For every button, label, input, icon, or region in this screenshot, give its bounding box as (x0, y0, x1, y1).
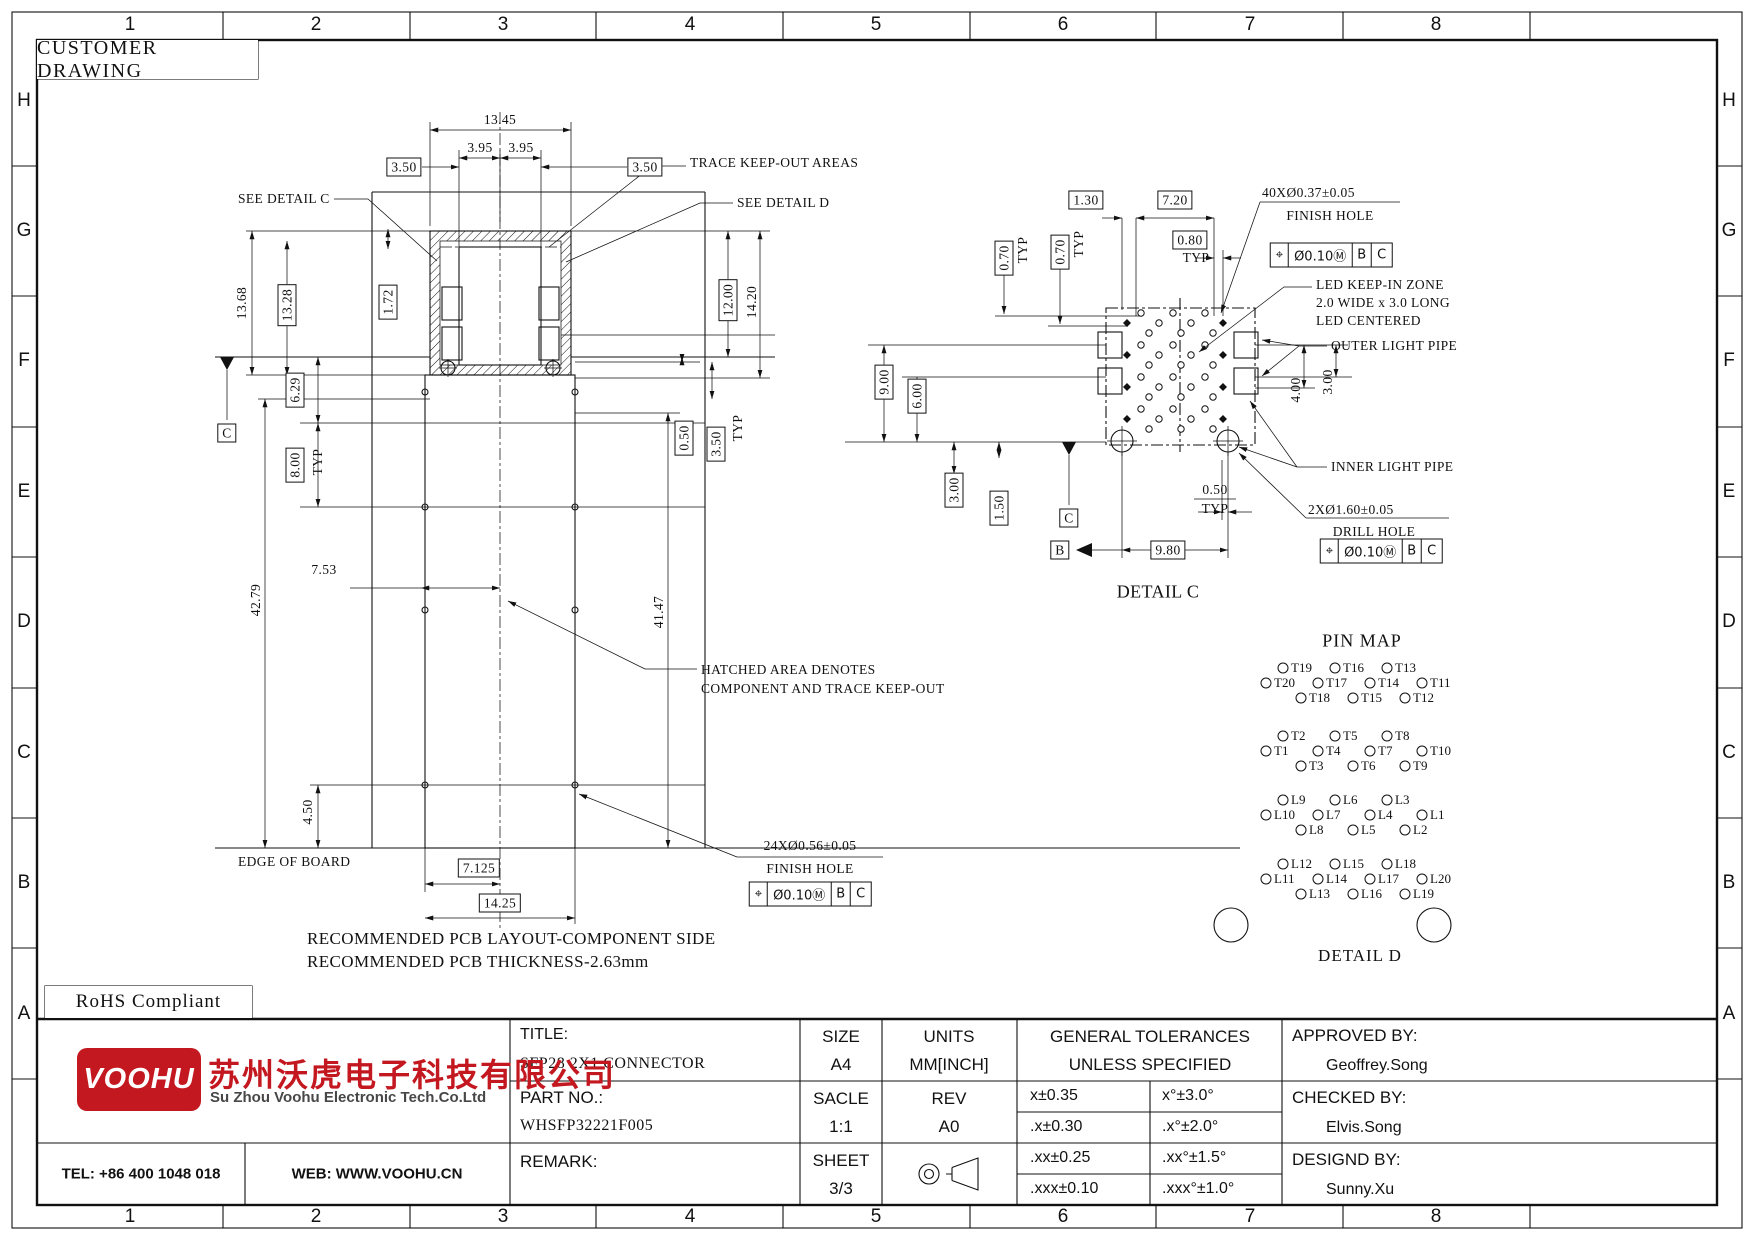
pin-label: L13 (1309, 886, 1330, 902)
title-block-grid (37, 1019, 1717, 1205)
drawing-sheet: CUSTOMER DRAWING RoHS Compliant PIN MAP … (0, 0, 1754, 1240)
dim-label: 12.00 (719, 279, 738, 321)
pin-hole (1313, 810, 1324, 821)
pin-label: T10 (1430, 743, 1451, 759)
dim-label: 8.00 (286, 447, 305, 482)
gdt-cell: C (1422, 540, 1441, 563)
pin-hole (1365, 678, 1376, 689)
zone-col-bottom: 6 (1058, 1206, 1069, 1228)
dim-label: TYP (1015, 237, 1031, 264)
dim-label: 2.0 WIDE x 3.0 LONG (1316, 295, 1450, 311)
dim-label: TYP (1202, 501, 1229, 517)
dim-label: 9.80 (1150, 541, 1185, 560)
pin-map-title: PIN MAP (1322, 631, 1402, 652)
dim-label: 0.70 (995, 240, 1014, 275)
detail-d-label: DETAIL D (1318, 946, 1402, 966)
dim-label: 7.20 (1157, 191, 1192, 210)
dim-label: 0.50 (675, 420, 694, 455)
units-label: UNITS (924, 1027, 975, 1047)
checked-value: Elvis.Song (1326, 1119, 1402, 1137)
pin-label: T20 (1274, 675, 1295, 691)
zone-col-bottom: 3 (498, 1206, 509, 1228)
dim-label: 13.28 (278, 284, 297, 326)
pin-label: L5 (1361, 822, 1375, 838)
pin-label: L6 (1343, 792, 1357, 808)
dim-label: 3.50 (707, 426, 726, 461)
tol-dxxdeg: .xx°±1.5° (1162, 1149, 1226, 1167)
designed-value: Sunny.Xu (1326, 1181, 1394, 1199)
pin-hole (1365, 874, 1376, 885)
tol-dx: .x±0.30 (1030, 1118, 1082, 1136)
pin-label: T14 (1378, 675, 1399, 691)
dim-label: TYP (1183, 250, 1210, 266)
zone-col-bottom: 4 (685, 1206, 696, 1228)
zone-row-left: G (17, 220, 32, 242)
pin-hole (1313, 746, 1324, 757)
datum-b: B (1050, 541, 1069, 560)
zone-row-left: E (18, 481, 31, 503)
gdt-frame: ⌖Ø0.10ⓂBC (1270, 243, 1393, 268)
pin-label: L12 (1291, 856, 1312, 872)
pin-label: T13 (1395, 660, 1416, 676)
zone-row-left: A (18, 1003, 31, 1025)
note-inner-light-pipe: INNER LIGHT PIPE (1331, 459, 1453, 475)
dim-label: 3.95 (467, 140, 492, 156)
zone-row-right: C (1722, 742, 1736, 764)
zone-row-left: B (18, 872, 31, 894)
zone-col-bottom: 2 (311, 1206, 322, 1228)
pin-hole (1278, 731, 1289, 742)
gdt-cell: Ø0.10Ⓜ (768, 883, 831, 906)
dim-label: 3.50 (386, 158, 421, 177)
zone-row-right: F (1723, 350, 1735, 372)
dim-label: 3.50 (627, 158, 662, 177)
note-see-detail-d: SEE DETAIL D (737, 195, 829, 211)
dim-label: 42.79 (248, 584, 264, 616)
pin-hole (1400, 825, 1411, 836)
pin-label: L3 (1395, 792, 1409, 808)
gdt-cell: C (1372, 244, 1391, 267)
zone-row-right: H (1722, 90, 1736, 112)
pin-hole (1365, 746, 1376, 757)
note-pcb-thickness: RECOMMENDED PCB THICKNESS-2.63mm (307, 952, 649, 972)
pin-hole (1382, 795, 1393, 806)
dim-label: 14.20 (744, 286, 760, 318)
tol-dxx: .xx±0.25 (1030, 1149, 1090, 1167)
pin-hole (1261, 874, 1272, 885)
pin-label: L17 (1378, 871, 1399, 887)
detail-c-label: DETAIL C (1117, 582, 1200, 603)
approved-value: Geoffrey.Song (1326, 1057, 1428, 1075)
pin-hole (1400, 761, 1411, 772)
pin-label: T2 (1291, 728, 1305, 744)
dim-label: TYP (310, 449, 326, 476)
note-trace-keepout: TRACE KEEP-OUT AREAS (690, 155, 858, 171)
zone-col-top: 5 (871, 14, 882, 36)
note-pcb-layout: RECOMMENDED PCB LAYOUT-COMPONENT SIDE (307, 929, 716, 949)
pin-label: L1 (1430, 807, 1444, 823)
detail-d-circles (1214, 908, 1451, 942)
pin-label: T9 (1413, 758, 1427, 774)
pin-hole (1417, 678, 1428, 689)
tol-xdeg: x°±3.0° (1162, 1087, 1214, 1105)
approved-label: APPROVED BY: (1292, 1026, 1418, 1046)
pin-label: T19 (1291, 660, 1312, 676)
rev-value: A0 (939, 1117, 960, 1137)
zone-col-bottom: 5 (871, 1206, 882, 1228)
datum-c-detail: C (1059, 509, 1078, 528)
designed-label: DESIGND BY: (1292, 1150, 1401, 1170)
zone-row-right: G (1722, 220, 1737, 242)
units-value: MM[INCH] (909, 1055, 988, 1075)
pin-hole (1261, 810, 1272, 821)
note-led-keepin: LED KEEP-IN ZONE (1316, 277, 1444, 293)
projection-symbol (919, 1158, 978, 1190)
pin-label: T18 (1309, 690, 1330, 706)
dim-label: 7.125 (458, 859, 500, 878)
voohu-logo: VOOHU (77, 1048, 201, 1111)
pin-label: L8 (1309, 822, 1323, 838)
pin-hole (1365, 810, 1376, 821)
pin-hole (1261, 746, 1272, 757)
tol-x: x±0.35 (1030, 1087, 1078, 1105)
pin-hole (1313, 874, 1324, 885)
dim-label: 4.50 (300, 799, 316, 824)
gdt-cell: Ø0.10Ⓜ (1289, 244, 1352, 267)
datum-c: C (217, 424, 236, 443)
pin-label: L9 (1291, 792, 1305, 808)
pin-label: L11 (1274, 871, 1294, 887)
pin-hole (1296, 889, 1307, 900)
gdt-cell: Ø0.10Ⓜ (1339, 540, 1402, 563)
zone-row-left: H (17, 90, 31, 112)
tol-dxxxdeg: .xxx°±1.0° (1162, 1180, 1234, 1198)
size-value: A4 (831, 1055, 852, 1075)
pin-hole (1382, 663, 1393, 674)
zone-row-right: B (1723, 872, 1736, 894)
zone-col-top: 8 (1431, 14, 1442, 36)
pin-label: L16 (1361, 886, 1382, 902)
dim-label: 3.95 (508, 140, 533, 156)
scale-value: 1:1 (829, 1117, 853, 1137)
customer-drawing-box: CUSTOMER DRAWING (37, 40, 258, 79)
sheet-label: SHEET (813, 1151, 870, 1171)
pin-hole (1330, 859, 1341, 870)
gdt-cell: ⌖ (750, 883, 768, 906)
pin-label: T6 (1361, 758, 1375, 774)
pin-label: T1 (1274, 743, 1288, 759)
pin-hole (1313, 678, 1324, 689)
customer-drawing-label: CUSTOMER DRAWING (37, 37, 258, 83)
part-value: WHSFP32221F005 (520, 1117, 653, 1135)
pin-hole (1348, 825, 1359, 836)
zone-row-right: A (1723, 1003, 1736, 1025)
zone-row-left: C (17, 742, 31, 764)
zone-col-bottom: 7 (1245, 1206, 1256, 1228)
gdt-frame: ⌖Ø0.10ⓂBC (749, 882, 872, 907)
pin-label: T11 (1430, 675, 1450, 691)
pin-hole (1296, 825, 1307, 836)
callout-drill-hole-2x: 2XØ1.60±0.05 (1308, 502, 1394, 518)
pin-hole (1278, 859, 1289, 870)
pin-label: L19 (1413, 886, 1434, 902)
pin-hole (1400, 889, 1411, 900)
dim-label: TYP (730, 415, 746, 442)
tolerances-header-2: UNLESS SPECIFIED (1069, 1055, 1232, 1075)
scale-label: SACLE (813, 1089, 869, 1109)
dim-label: 7.53 (311, 562, 336, 578)
pin-hole (1348, 761, 1359, 772)
pin-label: T5 (1343, 728, 1357, 744)
zone-col-bottom: 8 (1431, 1206, 1442, 1228)
main-view (215, 0, 1240, 930)
pin-hole (1278, 795, 1289, 806)
callout-finish-hole-40x: 40XØ0.37±0.05 (1262, 185, 1355, 201)
callout-finish-hole-24x: 24XØ0.56±0.05 (764, 838, 857, 854)
size-label: SIZE (822, 1027, 860, 1047)
pin-hole (1330, 663, 1341, 674)
zone-row-right: D (1722, 611, 1736, 633)
pin-hole (1348, 693, 1359, 704)
title-label: TITLE: (520, 1026, 568, 1044)
zone-col-top: 6 (1058, 14, 1069, 36)
dim-label: 14.25 (479, 894, 521, 913)
checked-label: CHECKED BY: (1292, 1088, 1406, 1108)
dim-label: COMPONENT AND TRACE KEEP-OUT (701, 681, 945, 697)
dim-label: 0.80 (1172, 231, 1207, 250)
gdt-cell: B (831, 883, 851, 906)
dim-label: 1.30 (1068, 191, 1103, 210)
rohs-label: RoHS Compliant (76, 991, 221, 1013)
gdt-cell: B (1402, 540, 1422, 563)
remark-label: REMARK: (520, 1152, 597, 1172)
voohu-wordmark: VOOHU (83, 1063, 194, 1096)
dim-label: FINISH HOLE (1286, 208, 1373, 224)
pin-label: T12 (1413, 690, 1434, 706)
rev-label: REV (932, 1089, 967, 1109)
note-see-detail-c: SEE DETAIL C (238, 191, 330, 207)
note-hatched-area: HATCHED AREA DENOTES (701, 662, 876, 678)
pin-label: T4 (1326, 743, 1340, 759)
pin-label: L18 (1395, 856, 1416, 872)
dim-label: 3.00 (945, 472, 964, 507)
web-label: WEB: WWW.VOOHU.CN (292, 1166, 463, 1183)
tol-dxxx: .xxx±0.10 (1030, 1180, 1098, 1198)
pin-label: L10 (1274, 807, 1295, 823)
pin-hole (1278, 663, 1289, 674)
zone-col-top: 1 (125, 14, 136, 36)
dim-label: 13.45 (484, 112, 516, 128)
pin-label: T7 (1378, 743, 1392, 759)
tolerances-header-1: GENERAL TOLERANCES (1050, 1027, 1250, 1047)
dim-label: 4.00 (1288, 377, 1304, 402)
gdt-cell: ⌖ (1271, 244, 1289, 267)
dim-label: TYP (1071, 231, 1087, 258)
pin-label: T15 (1361, 690, 1382, 706)
zone-row-left: D (17, 611, 31, 633)
pin-hole (1417, 746, 1428, 757)
dim-label: 9.00 (875, 364, 894, 399)
gdt-cell: ⌖ (1321, 540, 1339, 563)
dim-label: 6.00 (908, 378, 927, 413)
pin-hole (1296, 693, 1307, 704)
pin-label: L4 (1378, 807, 1392, 823)
pin-label: L14 (1326, 871, 1347, 887)
dim-label: 0.50 (1202, 482, 1227, 498)
zone-row-left: F (18, 350, 30, 372)
note-edge-of-board: EDGE OF BOARD (238, 854, 350, 870)
pin-hole (1296, 761, 1307, 772)
dim-label: 3.00 (1320, 369, 1336, 394)
zone-col-top: 3 (498, 14, 509, 36)
gdt-cell: C (851, 883, 870, 906)
tol-dxdeg: .x°±2.0° (1162, 1118, 1218, 1136)
pin-label: T8 (1395, 728, 1409, 744)
zone-col-top: 2 (311, 14, 322, 36)
dim-label: 6.29 (286, 372, 305, 407)
note-outer-light-pipe: OUTER LIGHT PIPE (1331, 338, 1457, 354)
pin-label: L7 (1326, 807, 1340, 823)
dim-label: 0.70 (1051, 234, 1070, 269)
zone-col-top: 4 (685, 14, 696, 36)
sheet-value: 3/3 (829, 1179, 853, 1199)
pin-hole (1382, 731, 1393, 742)
zone-col-bottom: 1 (125, 1206, 136, 1228)
pin-hole (1417, 874, 1428, 885)
pin-label: T16 (1343, 660, 1364, 676)
dim-label: 13.68 (234, 287, 250, 319)
pin-hole (1417, 810, 1428, 821)
company-name-en: Su Zhou Voohu Electronic Tech.Co.Ltd (210, 1089, 486, 1106)
tel-label: TEL: +86 400 1048 018 (62, 1166, 221, 1183)
pin-label: L15 (1343, 856, 1364, 872)
pin-hole (1400, 693, 1411, 704)
pin-hole (1261, 678, 1272, 689)
pin-label: L2 (1413, 822, 1427, 838)
dim-label: 1.72 (379, 284, 398, 319)
dim-label: FINISH HOLE (766, 861, 853, 877)
pin-label: T3 (1309, 758, 1323, 774)
dim-label: LED CENTERED (1316, 313, 1421, 329)
pin-hole (1330, 795, 1341, 806)
gdt-cell: B (1352, 244, 1372, 267)
pin-hole (1382, 859, 1393, 870)
dim-label: 41.47 (651, 596, 667, 628)
pin-label: L20 (1430, 871, 1451, 887)
pin-hole (1348, 889, 1359, 900)
pin-label: T17 (1326, 675, 1347, 691)
rohs-box: RoHS Compliant (45, 986, 252, 1018)
pin-hole (1330, 731, 1341, 742)
zone-col-top: 7 (1245, 14, 1256, 36)
dim-label: 1.50 (990, 490, 1009, 525)
zone-row-right: E (1723, 481, 1736, 503)
gdt-frame: ⌖Ø0.10ⓂBC (1320, 539, 1443, 564)
